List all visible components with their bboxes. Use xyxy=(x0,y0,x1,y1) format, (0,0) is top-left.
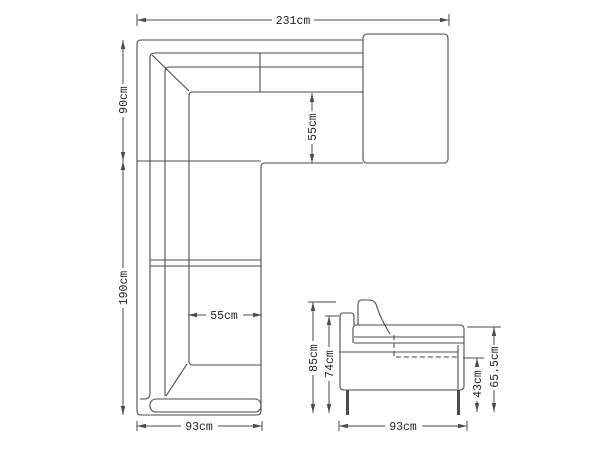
side-view-sofa xyxy=(340,300,464,415)
dim-label-width: 231cm xyxy=(276,15,311,28)
dim-label-overall-height: 85cm xyxy=(308,344,321,372)
dim-label-chaise-seat-depth: 55cm xyxy=(307,113,320,141)
diagram-canvas: 231cm 90cm 190cm 55cm 55cm 93cm xyxy=(0,0,600,460)
chaise-section xyxy=(363,34,448,163)
arm-profile xyxy=(340,313,354,330)
arrow-right xyxy=(440,18,449,22)
dim-label-seat-width: 55cm xyxy=(210,310,238,323)
dim-label-left-length: 190cm xyxy=(118,271,131,306)
body-outline xyxy=(340,316,464,390)
hidden-seat-line xyxy=(394,335,460,357)
front-leg xyxy=(346,390,349,415)
arrow-left xyxy=(137,18,146,22)
top-view-sofa xyxy=(137,34,448,415)
sofa-dimension-diagram: 231cm 90cm 190cm 55cm 55cm 93cm xyxy=(0,0,600,460)
top-view-dimensions: 231cm 90cm 190cm 55cm 55cm 93cm xyxy=(117,14,449,434)
dim-label-backrest-height: 65.5cm xyxy=(489,346,502,388)
back-leg xyxy=(457,390,460,415)
back-cushion-line xyxy=(165,67,363,396)
corner-seam xyxy=(152,55,189,91)
arm-pad xyxy=(150,399,261,412)
dim-label-seat-height: 43cm xyxy=(472,370,485,398)
seat-edge-lines xyxy=(189,92,363,365)
dim-label-bottom-depth: 93cm xyxy=(185,421,213,434)
dim-label-corner-depth: 90cm xyxy=(118,86,131,114)
front-corner-seam xyxy=(166,364,187,396)
dim-label-arm-height: 74cm xyxy=(324,350,337,378)
back-cushion-profile xyxy=(358,300,390,334)
dim-label-side-depth: 93cm xyxy=(389,421,417,434)
side-view-dimensions: 85cm 74cm 43cm 65.5cm 93cm xyxy=(307,302,502,434)
